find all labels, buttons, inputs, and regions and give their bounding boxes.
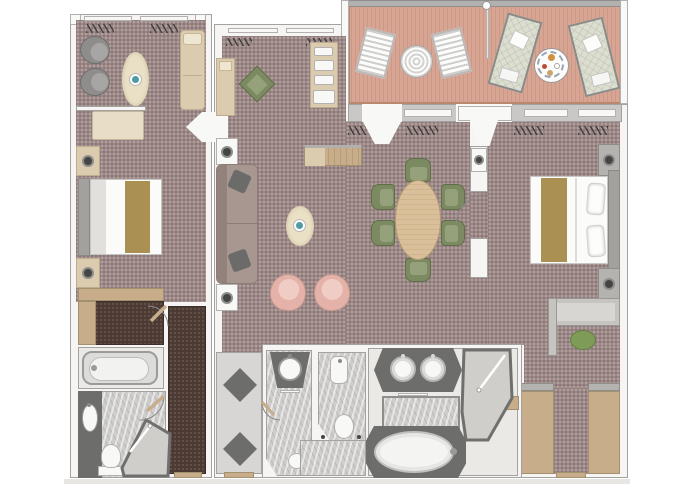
toilet-bowl: [101, 444, 121, 468]
seat-cushion: [89, 41, 109, 62]
window-slot: [228, 28, 278, 33]
dining-chair: [441, 220, 465, 246]
door-threshold: [458, 106, 512, 121]
oval-rug: [286, 206, 314, 246]
glassware: [314, 47, 333, 56]
floor-plan: [0, 0, 680, 486]
dining-chair: [405, 158, 431, 182]
wardrobe-cap: [588, 383, 620, 391]
side-table: [216, 284, 238, 311]
bed-runner: [125, 181, 150, 253]
chaise: [180, 30, 205, 110]
entry-door: [556, 472, 586, 478]
towel-rail: [280, 390, 300, 393]
divider-knob: [482, 1, 491, 10]
vanity-sink: [390, 356, 416, 382]
table-lamp: [221, 292, 233, 304]
corridor-floor: [470, 278, 488, 345]
table-lamp: [82, 155, 94, 167]
faucet: [401, 354, 405, 358]
wc-toilet: [334, 414, 354, 439]
table-plant: [132, 76, 139, 83]
window-slot: [84, 16, 132, 21]
floor-diamond: [223, 368, 257, 402]
window-slot: [140, 16, 188, 21]
seat-cushion: [321, 278, 344, 301]
bath-mat: [504, 396, 519, 410]
lounger-pillow: [508, 30, 530, 51]
faucet: [87, 403, 91, 407]
nightstand: [598, 268, 620, 300]
entry-door: [224, 472, 254, 478]
faucet: [431, 354, 435, 358]
double-bed: [530, 176, 608, 264]
console-shelf: [305, 148, 325, 166]
window-slot: [404, 109, 452, 117]
desk-return: [548, 298, 557, 356]
desk-surface: [553, 303, 615, 321]
breakfast-table: [534, 48, 569, 83]
window-slot: [578, 109, 616, 117]
wardrobe: [78, 301, 96, 345]
sofa-back: [217, 165, 227, 283]
food-cup: [554, 63, 560, 69]
lounger-footpad: [590, 71, 611, 87]
nightstand: [76, 146, 100, 176]
window-slot: [286, 28, 334, 33]
room-wc-lower: [300, 440, 366, 476]
bathtub: [82, 351, 158, 385]
seat-cushion: [380, 189, 393, 206]
sofa-pillow: [227, 248, 251, 272]
seat-cushion: [445, 189, 458, 206]
table-lamp: [474, 155, 484, 165]
bed-pillow: [586, 182, 606, 215]
bathtub-basin: [89, 357, 149, 381]
glassware: [314, 60, 334, 71]
table-lamp: [82, 267, 94, 279]
faucet: [338, 359, 342, 363]
chaise-pillow: [183, 33, 202, 45]
seat-cushion: [445, 225, 458, 242]
faucet: [288, 354, 292, 358]
bed-pillow: [586, 224, 606, 257]
nightstand: [76, 258, 100, 288]
sofa-seam: [227, 223, 257, 224]
vanity-sink: [420, 356, 446, 382]
oval-bathtub: [374, 431, 454, 473]
seat-cushion: [277, 278, 300, 301]
chaise-pillow: [219, 61, 232, 71]
hinge-dot: [321, 435, 325, 439]
curtain-mark: [86, 24, 114, 33]
hinge-dot: [357, 435, 361, 439]
curtain-mark: [578, 126, 608, 135]
bed-sheet-fold: [575, 178, 577, 262]
powder-sink: [278, 357, 302, 381]
seat-cushion: [380, 225, 393, 242]
bed-runner: [541, 178, 567, 262]
curtain-mark: [226, 38, 252, 46]
curtain-mark: [406, 126, 438, 135]
bar-cabinet: [310, 42, 338, 108]
wardrobe-corridor: [554, 388, 588, 474]
curtain-mark: [150, 24, 178, 33]
bedroom-lower-floor: [524, 345, 620, 388]
lounger-pillow: [581, 33, 603, 54]
table-lamp: [221, 146, 233, 158]
food-jam: [542, 64, 547, 69]
dining-chair: [371, 184, 395, 210]
media-console: [304, 145, 362, 166]
desk: [548, 298, 620, 326]
niche-cabinet: [471, 148, 487, 172]
wardrobe: [588, 391, 620, 474]
wc-sink: [330, 356, 348, 384]
balcony-wall-east: [620, 0, 628, 104]
seat-cushion: [410, 167, 427, 180]
glassware: [314, 75, 334, 85]
sink-basin: [82, 404, 98, 432]
entry-door: [174, 472, 202, 478]
chaise-seam: [183, 75, 202, 76]
balcony-door-gap: [362, 104, 402, 122]
dining-chair: [371, 220, 395, 246]
dresser: [78, 288, 164, 301]
bath-faucet: [450, 448, 457, 455]
room-entry-hall: [216, 352, 262, 474]
curtain-mark: [514, 126, 544, 135]
side-table: [216, 138, 238, 165]
wardrobe-cap: [520, 383, 554, 391]
lounger-footpad: [498, 67, 520, 84]
bench: [92, 111, 144, 140]
seat-cushion: [410, 262, 427, 275]
double-bed: [90, 179, 162, 255]
table-lamp: [603, 278, 615, 290]
partition-wall: [470, 238, 488, 278]
stool: [570, 330, 596, 350]
bath-faucet: [91, 365, 97, 371]
seat-cushion: [89, 71, 109, 92]
tray: [313, 90, 335, 104]
dining-chair: [441, 184, 465, 210]
bed-sheet-fold: [91, 180, 106, 254]
room-entry-corridor: [168, 306, 206, 474]
table-lamp: [603, 154, 615, 166]
dining-chair: [405, 258, 431, 282]
floor-diamond: [223, 432, 257, 466]
vanity: [374, 348, 462, 392]
oval-rug: [122, 52, 149, 106]
seat-cushion: [246, 74, 267, 95]
sofa-pillow: [227, 169, 252, 194]
chaise: [216, 58, 235, 116]
doorway-floor: [470, 192, 488, 238]
dining-table: [395, 180, 441, 260]
food-croissant: [548, 54, 555, 61]
balcony-divider: [486, 7, 489, 59]
round-table: [400, 45, 433, 78]
bed-headboard: [608, 170, 620, 270]
window-slot: [524, 109, 568, 117]
wardrobe: [520, 391, 554, 474]
sink-counter: [78, 391, 102, 478]
table-plant: [296, 222, 303, 229]
food-bread: [547, 70, 553, 76]
bed-headboard: [78, 178, 90, 256]
sofa: [216, 164, 258, 284]
ground-shadow: [64, 479, 630, 484]
